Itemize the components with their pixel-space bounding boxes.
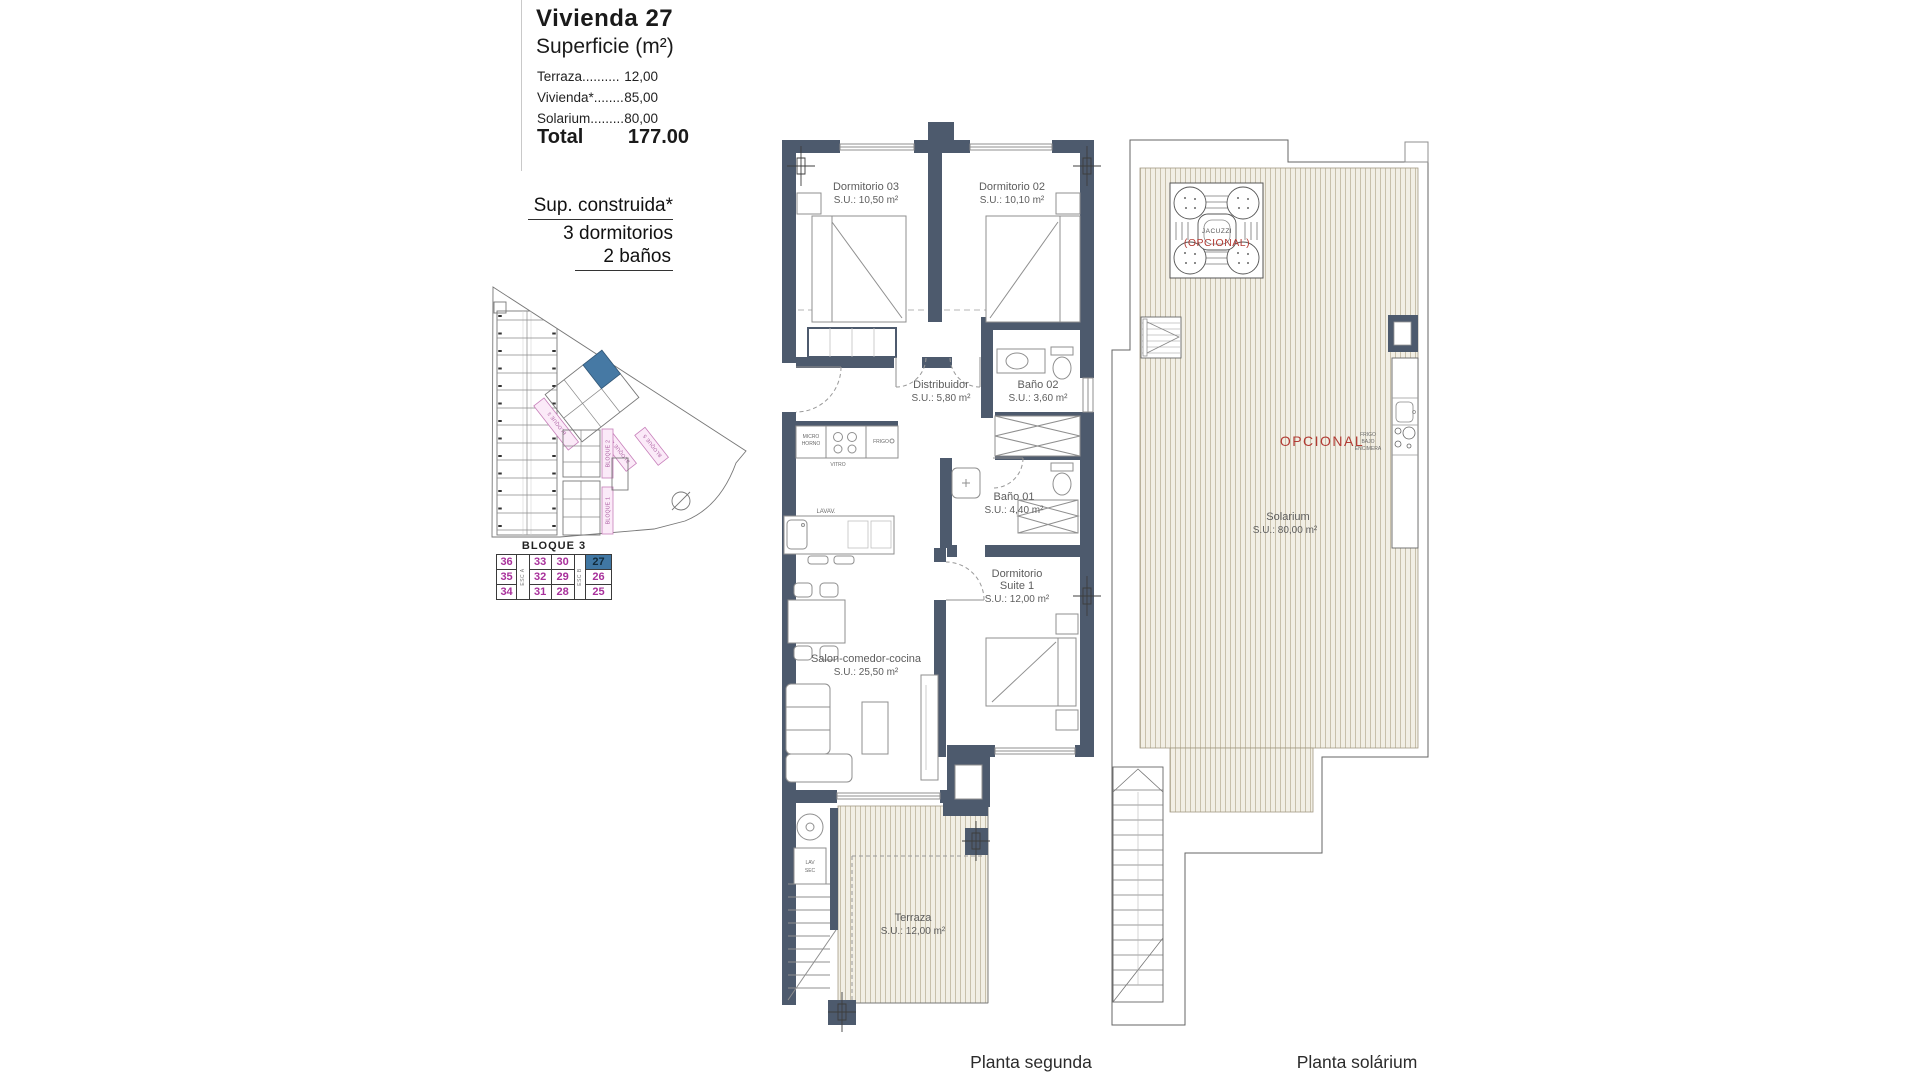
room-label-bano02: Baño 02	[1018, 379, 1059, 391]
site-bloque1-cluster: BLOQUE 1	[563, 481, 613, 535]
room-area-distribuidor: S.U.: 5,80 m²	[912, 393, 972, 404]
living-room-furniture	[786, 583, 938, 782]
hall-wardrobe	[995, 416, 1080, 456]
solarium-optional-label: OPCIONAL	[1280, 433, 1364, 449]
room-area-bano01: S.U.: 4,40 m²	[985, 505, 1045, 516]
laundry-cabinet	[794, 848, 826, 884]
room-label-dorm03: Dormitorio 03	[833, 181, 899, 193]
site-plan: BLOQUE 3 BLOQUE 4 BLOQUE 5 BLOQUE 2	[492, 287, 746, 537]
room-area-terraza: S.U.: 12,00 m²	[881, 926, 946, 937]
jacuzzi-optional-label: (OPCIONAL)	[1184, 237, 1250, 249]
room-area-solarium: S.U.: 80,00 m²	[1253, 525, 1318, 536]
label-horno: HORNO	[802, 441, 821, 447]
room-area-bano02: S.U.: 3,60 m²	[1009, 393, 1069, 404]
planta-segunda-plan: Dormitorio 03 S.U.: 10,50 m² Dormitorio …	[782, 122, 1101, 1032]
outdoor-kitchen-counter	[1392, 358, 1418, 548]
suite-furniture	[986, 614, 1078, 730]
room-label-salon: Salon-comedor-cocina	[811, 653, 922, 665]
label-frigo: FRIGO	[873, 439, 889, 445]
site-highlighted-unit	[583, 350, 620, 388]
label-frigo-bajo3: ENCIMERA	[1355, 446, 1382, 452]
room-label-solarium: Solarium	[1266, 511, 1309, 523]
bathroom2-fixtures	[997, 347, 1073, 379]
room-label-suite2: Suite 1	[1000, 580, 1034, 592]
label-frigo-bajo1: FRIGO	[1360, 432, 1376, 438]
dorm03-furniture	[797, 193, 906, 357]
label-sec: SEC	[805, 868, 816, 874]
washer-icon	[797, 814, 823, 840]
site-bloque3-cluster: BLOQUE 3	[533, 350, 639, 451]
room-label-suite: Dormitorio	[992, 568, 1043, 580]
chimney-block	[1388, 315, 1418, 352]
outdoor-sink	[1396, 402, 1413, 422]
site-roundabout	[672, 492, 690, 510]
site-bloque2-label: BLOQUE 2	[606, 440, 612, 467]
jacuzzi: JACUZZI (OPCIONAL)	[1170, 183, 1263, 278]
label-lav: LAV	[805, 860, 815, 866]
dorm02-furniture	[986, 193, 1080, 322]
caption-planta-segunda: Planta segunda	[970, 1052, 1092, 1073]
label-micro: MICRO	[803, 434, 820, 440]
room-label-terraza: Terraza	[895, 912, 933, 924]
plan-drawings: BLOQUE 3 BLOQUE 4 BLOQUE 5 BLOQUE 2	[0, 0, 1920, 1080]
room-area-dorm02: S.U.: 10,10 m²	[980, 195, 1045, 206]
stairs-solarium	[1113, 767, 1163, 1002]
room-area-dorm03: S.U.: 10,50 m²	[834, 195, 899, 206]
site-bloque1-label: BLOQUE 1	[606, 497, 612, 524]
stair-skylight	[1141, 317, 1181, 358]
label-frigo-bajo2: BAJO	[1361, 439, 1374, 445]
label-vitro: VITRO	[830, 462, 845, 468]
room-label-dorm02: Dormitorio 02	[979, 181, 1045, 193]
planta-solarium-plan: JACUZZI (OPCIONAL)	[1112, 140, 1428, 1025]
label-lavav: LAVAV.	[816, 509, 835, 515]
jacuzzi-label: JACUZZI	[1202, 228, 1232, 235]
room-area-salon: S.U.: 25,50 m²	[834, 667, 899, 678]
room-label-distribuidor: Distribuidor	[913, 379, 969, 391]
floorplan-sheet: Vivienda 27 Superficie (m²) Terraza.....…	[0, 0, 1920, 1080]
room-area-suite: S.U.: 12,00 m²	[985, 594, 1050, 605]
caption-planta-solarium: Planta solárium	[1297, 1052, 1418, 1073]
solarium-deck-lower	[1170, 748, 1313, 812]
site-bloque5-label-group: BLOQUE 5	[635, 427, 669, 465]
room-label-bano01: Baño 01	[994, 491, 1035, 503]
